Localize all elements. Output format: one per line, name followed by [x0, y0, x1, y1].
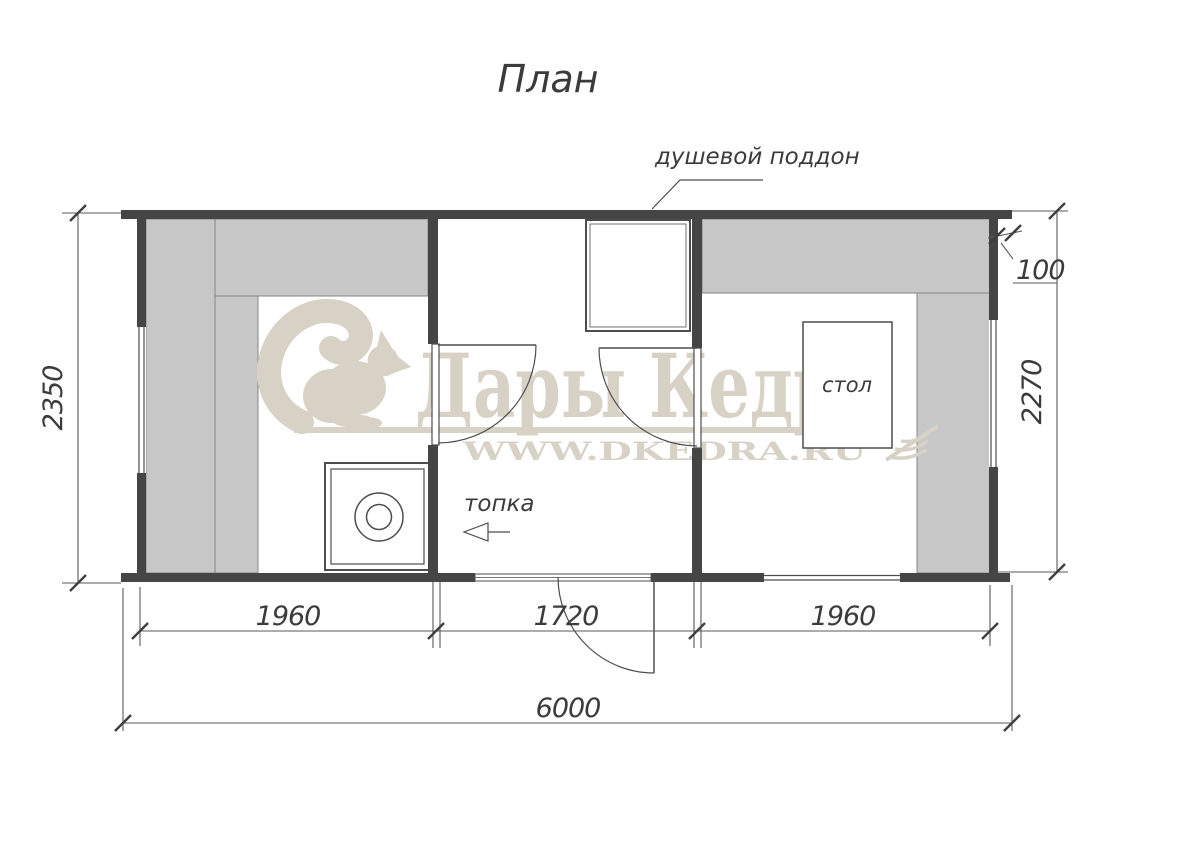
dim-value: 2270 — [1017, 360, 1048, 425]
stove-outline — [325, 463, 430, 570]
shower-tray-callout: душевой поддон — [652, 144, 860, 209]
squirrel-paw — [358, 418, 382, 429]
window-left — [137, 327, 146, 473]
window-cap — [989, 467, 998, 480]
wall-bottom-middle — [663, 573, 752, 582]
window-right-opening — [989, 320, 998, 467]
window-right — [989, 320, 998, 467]
dim-value: 100 — [1016, 255, 1065, 286]
wall-top — [121, 210, 1012, 219]
wall-right-upper — [989, 214, 998, 307]
dim-tick — [1005, 225, 1021, 241]
squirrel-ear — [376, 330, 392, 351]
window-cap — [989, 307, 998, 320]
dim-value: 1960 — [811, 601, 876, 632]
window-left-opening — [137, 327, 146, 473]
restroom-bench-top — [702, 219, 990, 293]
squirrel-snout — [391, 351, 411, 374]
dim-value: 6000 — [536, 693, 601, 724]
sauna-bench-step — [215, 296, 258, 573]
door-jamb — [432, 344, 439, 445]
wall-right-lower — [989, 480, 998, 573]
page-title: План — [498, 57, 599, 101]
dim-value: 2350 — [38, 366, 69, 431]
table-label: стол — [822, 373, 872, 397]
dim-value: 1960 — [256, 601, 321, 632]
wall-bottom-left — [121, 573, 463, 582]
dimension-offset-100: 100 — [988, 225, 1065, 286]
dim-value: 1720 — [534, 601, 599, 632]
wall-interior1-upper — [428, 219, 438, 344]
dim-leader — [1001, 243, 1013, 259]
stove — [325, 463, 430, 570]
wall-left-lower — [137, 487, 146, 573]
wall-bottom-right — [912, 573, 1010, 582]
dimension-bottom-row: 1960 1720 1960 — [132, 582, 998, 648]
wall-left-upper — [137, 214, 146, 314]
shower-tray-label: душевой поддон — [654, 144, 860, 170]
door-cap — [463, 573, 475, 582]
squirrel-logo-icon — [269, 311, 411, 429]
window-cap — [752, 573, 764, 582]
floor-plan-drawing: Дары Кедра WWW.DKEDRA.RU — [0, 0, 1200, 848]
window-cap — [900, 573, 912, 582]
entrance-threshold — [475, 574, 651, 581]
wall-interior2-lower — [692, 448, 702, 573]
window-cap — [137, 473, 146, 487]
door-cap — [651, 573, 663, 582]
sauna-bench-left — [146, 219, 215, 573]
sauna-bench-top — [215, 219, 428, 296]
firebox-callout: топка — [464, 491, 535, 541]
window-cap — [137, 314, 146, 327]
wall-interior2-upper — [692, 219, 702, 348]
firebox-arrow-icon — [464, 523, 488, 541]
firebox-label: топка — [464, 491, 535, 517]
shower-tray-outline — [586, 220, 690, 331]
leader-line — [652, 180, 763, 209]
door-jamb — [694, 348, 701, 448]
dimension-left-2350: 2350 — [38, 205, 121, 591]
wall-interior1-lower — [428, 445, 438, 573]
shower-tray — [586, 220, 690, 331]
window-bottom — [764, 574, 900, 581]
floor-plan-page: Дары Кедра WWW.DKEDRA.RU — [0, 0, 1200, 848]
